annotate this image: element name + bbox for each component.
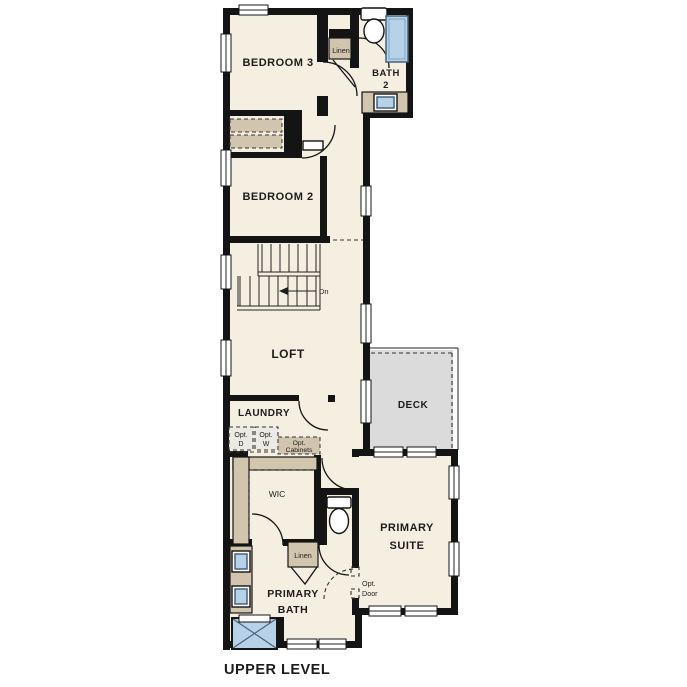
hall-door-leaf (303, 141, 323, 150)
toilet-tank-primary (327, 497, 351, 508)
deck-area (367, 348, 458, 450)
label-opt-dryer-line1: Opt. (234, 432, 247, 439)
shower-primary (232, 615, 277, 649)
label-opt-washer-line1: Opt. (259, 432, 272, 439)
room-label-loft: LOFT (271, 347, 304, 361)
toilet-primary (330, 509, 349, 534)
floor-plan-page: Dn (0, 0, 687, 687)
label-opt-dryer-line2: D (238, 441, 243, 448)
room-label-primary-suite-line2: SUITE (390, 540, 425, 552)
label-opt-door-line2: Door (362, 589, 378, 598)
label-opt-cabinets-line2: Cabinets (286, 447, 313, 454)
room-label-bedroom2: BEDROOM 2 (242, 191, 313, 203)
room-label-bedroom3: BEDROOM 3 (242, 57, 313, 69)
room-label-primary-suite-line1: PRIMARY (380, 522, 434, 534)
toilet-bath2 (364, 19, 384, 43)
room-label-deck: DECK (398, 400, 429, 411)
plan-title: UPPER LEVEL (224, 662, 330, 678)
label-opt-door-line1: Opt. (362, 579, 376, 588)
room-label-laundry: LAUNDRY (238, 408, 290, 419)
label-opt-washer-line2: W (263, 441, 270, 448)
label-linen-upper: Linen (332, 46, 350, 55)
label-opt-cabinets-line1: Opt. (293, 440, 306, 447)
room-label-wic: WIC (269, 489, 286, 499)
toilet-tank-bath2 (361, 8, 387, 20)
stairs-down-label: Dn (319, 287, 329, 296)
room-label-bath2-line1: BATH (372, 68, 400, 79)
floor-plan-drawing: Dn (0, 0, 687, 687)
room-label-bath2-line2: 2 (383, 80, 389, 91)
label-linen-lower: Linen (294, 551, 312, 560)
room-label-primary-bath-line2: BATH (278, 604, 308, 616)
room-label-primary-bath-line1: PRIMARY (267, 588, 319, 600)
